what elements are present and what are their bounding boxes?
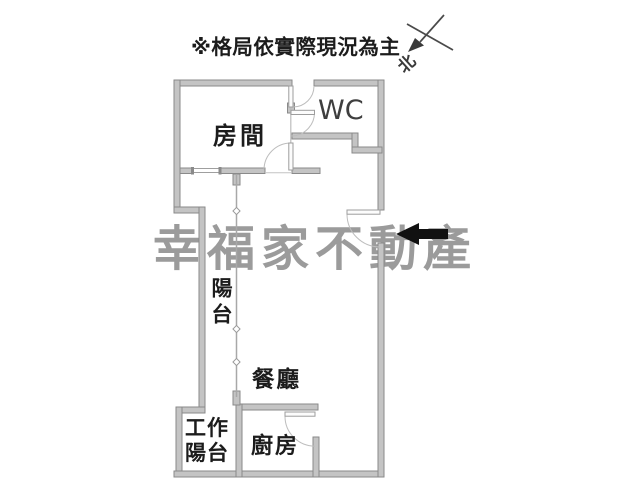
work-balcony-line2: 陽台	[185, 441, 229, 466]
work-balcony-line1: 工作	[185, 416, 229, 441]
bedroom-window	[193, 169, 220, 173]
wall-bedroom-b	[220, 168, 265, 174]
kitchen-door-leaf	[285, 412, 315, 416]
room-label-wc: WC	[318, 95, 364, 126]
entrance-door-leaf	[347, 210, 380, 214]
wc-top-door-leaf	[289, 86, 293, 107]
wall-top-right	[314, 80, 384, 86]
disclaimer-text: ※格局依實際現況為主	[191, 30, 400, 60]
wall-kitchen-right	[313, 437, 319, 477]
north-arrow-icon	[407, 15, 453, 52]
room-label-work-balcony: 工作 陽台	[185, 416, 229, 466]
wall-left-lower	[176, 407, 182, 477]
wall-kitchen-left	[236, 404, 242, 477]
bedroom-door-arc	[264, 143, 291, 170]
wall-bedroom-c	[292, 168, 320, 174]
floor-plan-drawing	[0, 0, 640, 480]
wall-bottom	[174, 471, 384, 477]
window-cap-right	[219, 167, 222, 175]
glass-joint-3	[233, 358, 240, 365]
floor-plan-page: 幸福家不動產	[0, 0, 640, 480]
wall-wc-notch-h	[352, 147, 382, 153]
room-label-kitchen: 廚房	[251, 428, 299, 460]
wall-top-left	[174, 80, 292, 86]
wc-door-leaf	[291, 110, 315, 114]
wc-top-door-arc	[293, 86, 314, 107]
room-label-dining: 餐廳	[252, 362, 301, 394]
bedroom-door-leaf	[289, 143, 293, 170]
entrance-arrow-icon	[396, 223, 448, 245]
window-cap-left	[191, 167, 194, 175]
room-label-bedroom: 房間	[213, 116, 267, 151]
wall-right-upper	[378, 80, 384, 210]
wall-left-upper	[174, 80, 180, 213]
glass-joint-1	[233, 207, 240, 214]
room-label-balcony: 陽台	[205, 277, 235, 329]
wc-door-arc	[291, 113, 315, 137]
entrance-door-arc	[347, 214, 380, 247]
wall-right-lower	[378, 243, 384, 477]
wall-kitchen-top	[236, 404, 318, 410]
